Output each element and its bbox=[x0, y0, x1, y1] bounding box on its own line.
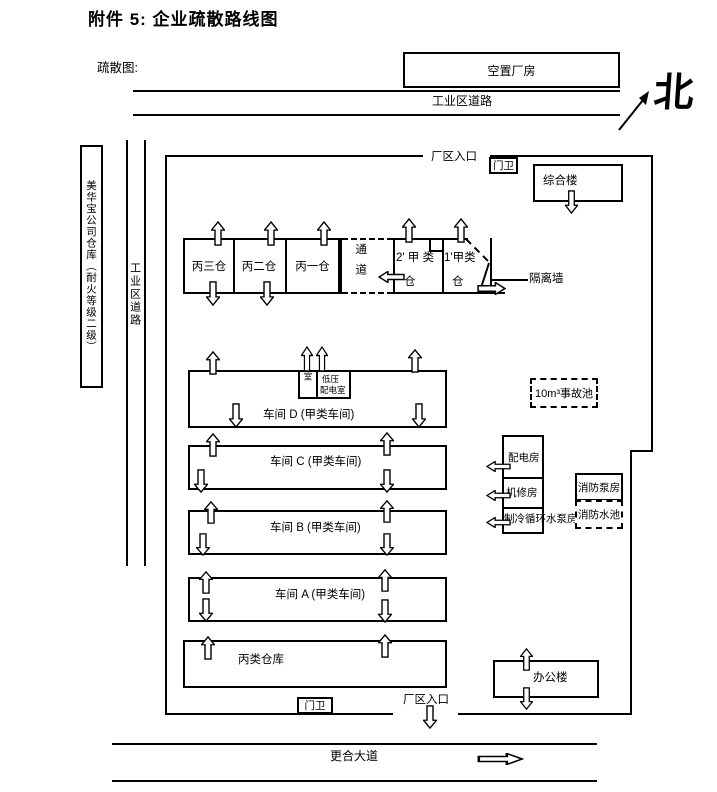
warehouse-c1-label: 丙一仓 bbox=[285, 238, 340, 294]
up-arrow-icon bbox=[264, 221, 278, 246]
down-arrow-icon bbox=[196, 533, 210, 556]
accident-pool-box: 10m³事故池 bbox=[530, 378, 598, 408]
fire-pool-box: 消防水池 bbox=[575, 500, 623, 529]
up-arrow-icon bbox=[378, 569, 392, 592]
warehouse-a2-label-2: 仓 bbox=[404, 276, 416, 289]
qc-room-box: 质检室 bbox=[298, 370, 318, 399]
top-gate-box: 门卫 bbox=[489, 157, 518, 174]
warehouse-c2-label: 丙二仓 bbox=[233, 238, 285, 294]
up-arrow-icon bbox=[380, 500, 394, 523]
warehouse-roof-box bbox=[429, 238, 444, 252]
down-arrow-icon bbox=[378, 599, 392, 623]
left-arrow-icon bbox=[486, 490, 511, 501]
down-arrow-icon bbox=[412, 403, 426, 428]
down-arrow-icon bbox=[229, 403, 243, 428]
top-road-label: 工业区道路 bbox=[432, 95, 492, 109]
boundary-top-left bbox=[165, 155, 423, 157]
down-arrow-icon bbox=[260, 281, 274, 306]
evacuation-map-page: 附件 5: 企业疏散路线图 疏散图: 空置厂房 工业区道路 北 美华宝公司仓库（… bbox=[0, 0, 717, 792]
warehouse-a1-label-2: 仓 bbox=[452, 276, 464, 289]
right-arrow-icon bbox=[477, 282, 506, 295]
vacant-plant-box: 空置厂房 bbox=[403, 52, 620, 88]
down-arrow-icon bbox=[194, 469, 208, 493]
page-title: 附件 5: 企业疏散路线图 bbox=[88, 5, 279, 30]
passage-top-dashed bbox=[342, 238, 393, 240]
down-arrow-icon bbox=[380, 469, 394, 493]
warehouse-a1-label-1: 1'甲类 bbox=[444, 252, 476, 265]
boundary-bottom-left bbox=[165, 713, 393, 715]
left-arrow-icon bbox=[378, 271, 405, 283]
top-road-line-1 bbox=[133, 90, 620, 92]
boundary-right-jog bbox=[630, 450, 653, 452]
lv-room-box: 低压 配电室 bbox=[316, 370, 351, 399]
north-label: 北 bbox=[652, 60, 696, 118]
up-arrow-icon bbox=[316, 346, 328, 372]
boundary-right-lower bbox=[630, 450, 632, 715]
right-arrow-icon bbox=[477, 753, 524, 765]
avenue-line-1 bbox=[112, 743, 597, 745]
fire-pump-room-box: 消防泵房 bbox=[575, 473, 623, 501]
top-road-line-2 bbox=[133, 114, 620, 116]
left-road-label: 工业区道路 bbox=[128, 262, 141, 327]
workshop-d-label: 车间 D (甲类车间) bbox=[263, 409, 354, 422]
top-entrance-label: 厂区入口 bbox=[431, 151, 477, 164]
workshop-a-label: 车间 A (甲类车间) bbox=[275, 589, 365, 602]
up-arrow-icon bbox=[211, 221, 225, 246]
up-arrow-icon bbox=[206, 433, 220, 457]
neighbor-warehouse-box: 美华宝公司仓库（耐火等级二级） bbox=[80, 145, 103, 388]
boundary-right-upper bbox=[651, 155, 653, 452]
class-c-warehouse-label: 丙类仓库 bbox=[238, 654, 284, 667]
passage-bottom-dashed bbox=[342, 292, 393, 294]
up-arrow-icon bbox=[380, 432, 394, 456]
workshop-c-label: 车间 C (甲类车间) bbox=[270, 456, 361, 469]
warehouse-a2-label-1: 2' 甲 类 bbox=[396, 252, 434, 265]
admin-building-label: 综合楼 bbox=[543, 175, 578, 188]
workshop-b-label: 车间 B (甲类车间) bbox=[270, 522, 361, 535]
office-building-label: 办公楼 bbox=[533, 672, 568, 685]
power-room-label: 配电房 bbox=[508, 452, 540, 464]
up-arrow-icon bbox=[199, 571, 213, 594]
down-arrow-icon bbox=[565, 190, 578, 214]
north-arrow-icon bbox=[616, 86, 656, 132]
up-arrow-icon bbox=[317, 221, 331, 246]
warehouse-wall-5 bbox=[393, 238, 395, 294]
up-arrow-icon bbox=[206, 351, 220, 375]
passage-label: 通道 bbox=[353, 243, 366, 284]
down-arrow-icon bbox=[520, 687, 533, 710]
isolation-wall-line bbox=[492, 279, 528, 281]
left-arrow-icon bbox=[486, 461, 511, 472]
boundary-bottom-right bbox=[458, 713, 632, 715]
down-arrow-icon bbox=[206, 281, 220, 306]
avenue-line-2 bbox=[112, 780, 597, 782]
down-arrow-icon bbox=[199, 598, 213, 622]
left-road-line-1 bbox=[126, 140, 128, 566]
bottom-gate-box: 门卫 bbox=[297, 697, 333, 714]
neighbor-warehouse-label: 美华宝公司仓库（耐火等级二级） bbox=[84, 180, 99, 353]
cooling-pump-room-label: 制冷循环水泵房 bbox=[504, 513, 578, 525]
up-arrow-icon bbox=[402, 218, 416, 243]
up-arrow-icon bbox=[301, 346, 313, 372]
utility-divider-1 bbox=[502, 477, 544, 479]
class-c-warehouse-box bbox=[183, 640, 447, 688]
lv-room-label-2: 配电室 bbox=[318, 384, 346, 396]
avenue-label: 更合大道 bbox=[330, 750, 378, 764]
up-arrow-icon bbox=[201, 636, 215, 660]
map-label: 疏散图: bbox=[97, 61, 138, 75]
down-arrow-icon bbox=[380, 533, 394, 556]
utility-divider-2 bbox=[502, 507, 544, 509]
up-arrow-icon bbox=[204, 501, 218, 524]
up-arrow-icon bbox=[454, 218, 468, 243]
up-arrow-icon bbox=[408, 349, 422, 373]
isolation-wall-label: 隔离墙 bbox=[529, 273, 564, 286]
boundary-left bbox=[165, 155, 167, 715]
down-arrow-icon bbox=[423, 705, 437, 729]
left-arrow-icon bbox=[486, 517, 511, 528]
up-arrow-icon bbox=[378, 634, 392, 658]
left-road-line-2 bbox=[144, 140, 146, 566]
up-arrow-icon bbox=[520, 648, 533, 671]
